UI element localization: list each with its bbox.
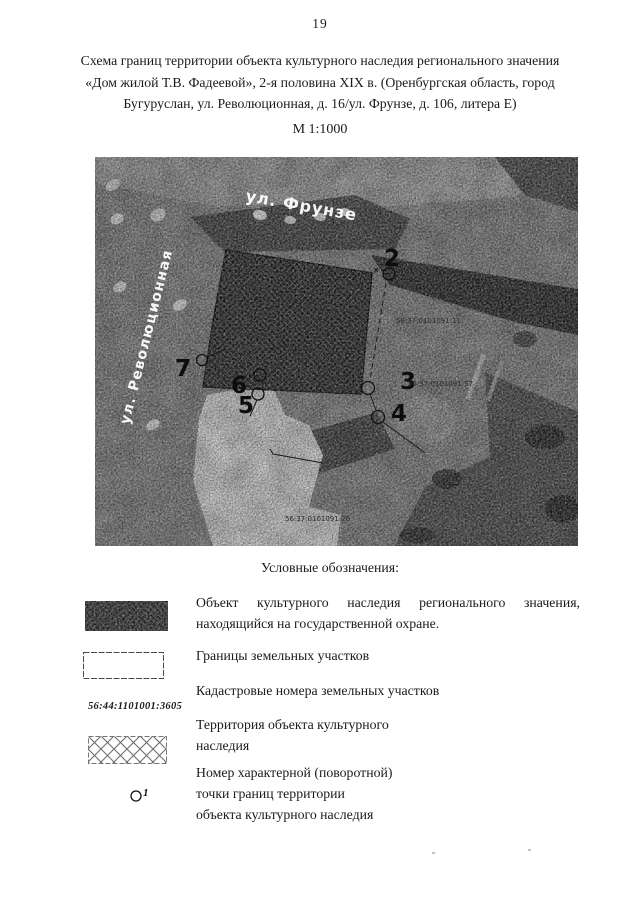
legend-item-line: Объект культурного наследия региональног… xyxy=(196,592,580,613)
turn-point-digit: 1 xyxy=(143,787,149,799)
title-line: Бугуруслан, ул. Революционная, д. 16/ул.… xyxy=(60,93,580,115)
legend-swatch-parcel-borders xyxy=(83,652,164,684)
map-image: 2 3 4 5 6 7 56:37:0101091:11 56:37:01010… xyxy=(95,157,578,546)
aerial-photo: 2 3 4 5 6 7 56:37:0101091:11 56:37:01010… xyxy=(95,157,578,546)
map-cadastral-number: 56:37:0101091:11 xyxy=(396,317,461,325)
legend-item-heritage-territory: Территория объекта культурного наследия xyxy=(196,714,456,756)
legend-item-line: объекта культурного наследия xyxy=(196,804,456,825)
legend-item-parcel-borders: Границы земельных участков xyxy=(196,645,580,666)
legend-item-line: Границы земельных участков xyxy=(196,645,580,666)
legend-turn-point-symbol: 1 xyxy=(129,785,155,803)
legend-item-line: Номер характерной (поворотной) xyxy=(196,762,456,783)
scan-speck xyxy=(432,852,435,854)
map-cadastral-number: 56:37:0101091:26 xyxy=(285,515,351,523)
scan-speck xyxy=(528,849,531,851)
point-label-6: 6 xyxy=(231,373,247,399)
legend-swatch-heritage-object xyxy=(85,601,168,636)
legend-item-line: Кадастровые номера земельных участков xyxy=(196,680,580,701)
point-label-4: 4 xyxy=(391,401,407,427)
legend-item-cadastral-numbers: Кадастровые номера земельных участков xyxy=(196,680,580,701)
legend-heading: Условные обозначения: xyxy=(0,560,640,576)
document-page: 19 Схема границ территории объекта культ… xyxy=(0,0,640,905)
title-line: «Дом жилой Т.В. Фадеевой», 2-я половина … xyxy=(60,72,580,94)
point-label-2: 2 xyxy=(384,246,400,272)
legend-item-turn-point: Номер характерной (поворотной) точки гра… xyxy=(196,762,456,825)
legend-item-line: точки границ территории xyxy=(196,783,456,804)
map-cadastral-number: 56:37:0101091:57 xyxy=(408,380,473,388)
legend-item-heritage-object: Объект культурного наследия региональног… xyxy=(196,592,580,634)
legend-item-line: Территория объекта культурного xyxy=(196,714,456,735)
title-line: Схема границ территории объекта культурн… xyxy=(60,50,580,72)
turn-point-circle xyxy=(131,791,141,801)
legend-item-line: находящийся на государственной охране. xyxy=(196,613,580,634)
map-scale-label: М 1:1000 xyxy=(0,122,640,138)
legend-swatch-heritage-territory xyxy=(88,736,167,769)
page-number: 19 xyxy=(0,16,640,32)
legend-item-line: наследия xyxy=(196,735,456,756)
point-label-7: 7 xyxy=(175,356,191,382)
legend-cadastral-sample: 56:44:1101001:3605 xyxy=(88,701,182,712)
map-cadastral-number: 56:37:0101091:14 xyxy=(473,461,539,469)
document-title: Схема границ территории объекта культурн… xyxy=(60,50,580,115)
